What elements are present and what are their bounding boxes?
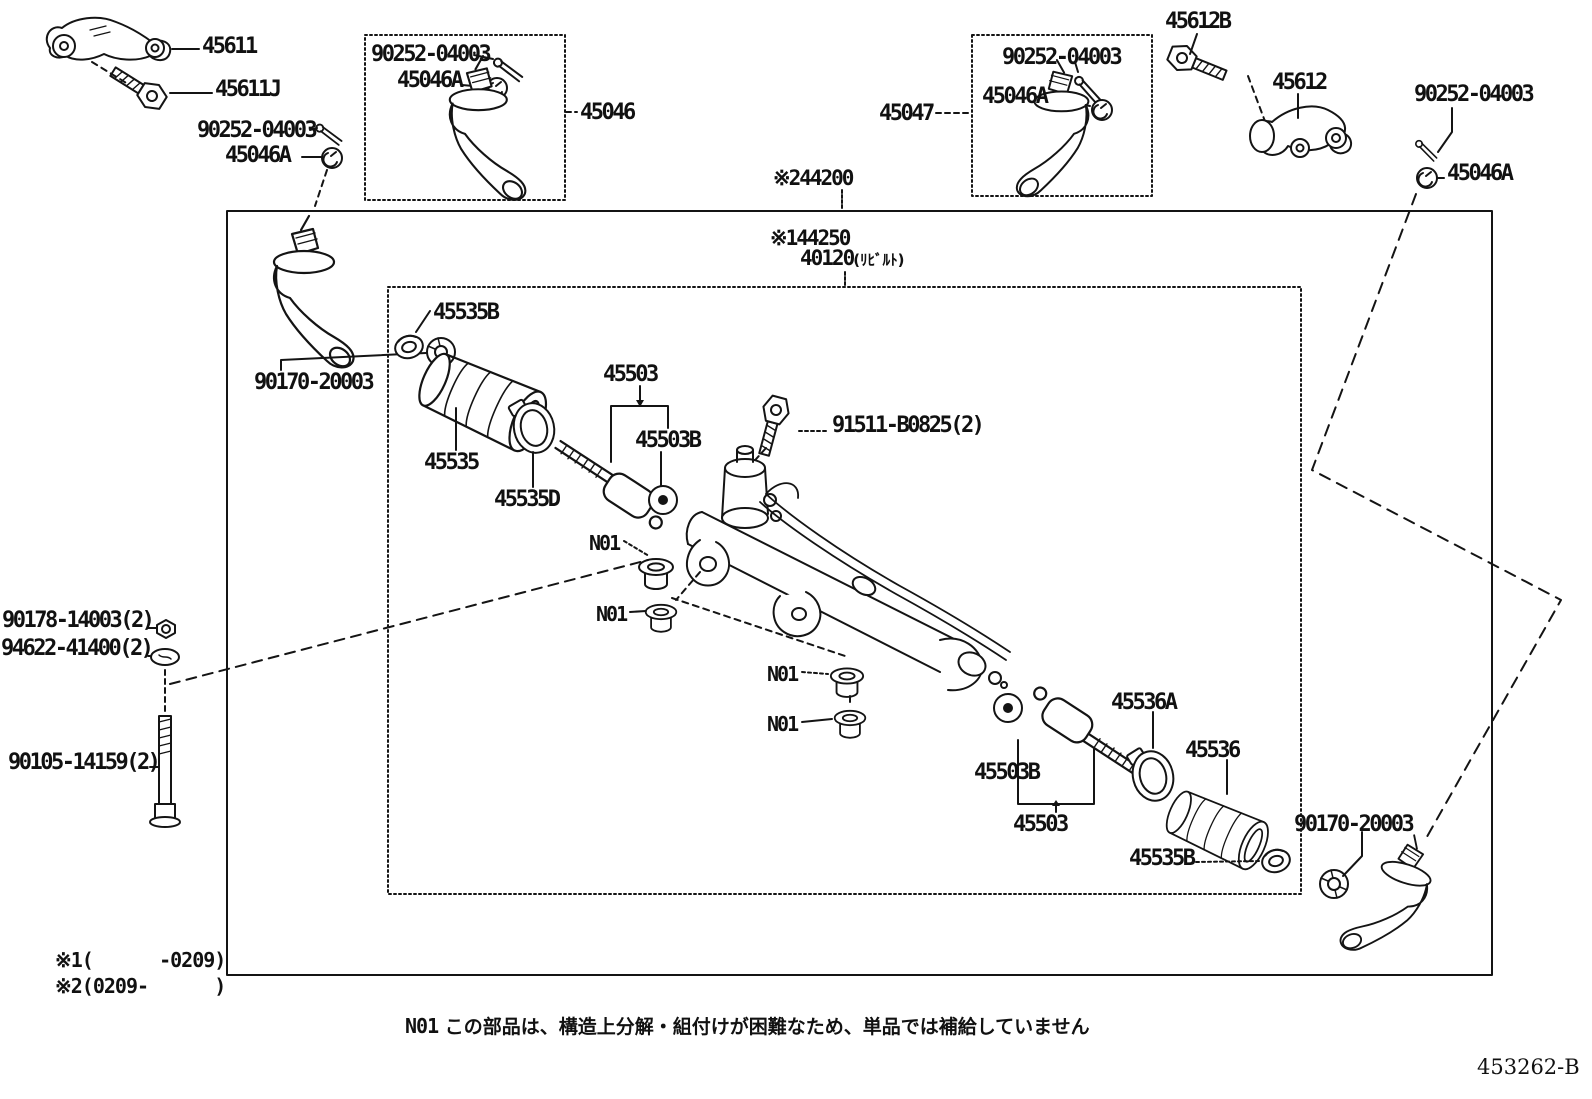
part-label-45535: 45535 (424, 452, 478, 474)
document-code: 453262-B (1477, 1057, 1580, 1078)
part-label-94622: 94622-41400(2) (1, 638, 151, 660)
clip-icon-tr (1417, 168, 1437, 188)
part-label-45535b-tl: 45535B (433, 302, 497, 324)
part-label-n01-1: N01 (589, 533, 619, 553)
assembly-label-40120-number: 40120 (800, 246, 853, 270)
part-label-45611j: 45611J (215, 79, 279, 101)
part-label-45536a: 45536A (1111, 692, 1175, 714)
part-label-45535b-bot: 45535B (1129, 848, 1193, 870)
gearbox-bolt-drawing (752, 394, 792, 458)
footnote-2: ※2(0209- ) (55, 976, 225, 996)
part-label-45612: 45612 (1272, 72, 1326, 94)
part-label-45611: 45611 (202, 36, 256, 58)
clip-icon-tl (322, 148, 342, 168)
inner-assembly-box (388, 287, 1301, 894)
claw-washer-top (649, 486, 677, 514)
n01-footnote-prefix: N01 (405, 1014, 438, 1038)
part-label-45535d: 45535D (494, 489, 558, 511)
part-label-90105: 90105-14159(2) (8, 752, 158, 774)
pitman-arm-drawing (47, 18, 170, 60)
grommet-2 (646, 605, 677, 632)
assembly-label-40120: 40120(ﾘﾋﾞﾙﾄ) (800, 248, 904, 269)
grommet-3 (831, 668, 863, 697)
washer-icon-94622 (151, 649, 179, 665)
clip-icon-box2 (1092, 100, 1112, 120)
claw-washer-bottom (994, 694, 1022, 722)
part-label-90252-tl: 90252-04003 (197, 120, 315, 142)
assembly-dash-right (1312, 194, 1561, 842)
rack-and-pinion-drawing (687, 446, 1010, 690)
part-label-90252-tr: 90252-04003 (1414, 84, 1532, 106)
pitman-arm-bolt-drawing (106, 61, 170, 114)
part-label-45046: 45046 (580, 102, 634, 124)
idler-arm-drawing (1250, 106, 1351, 157)
part-label-45536: 45536 (1185, 740, 1239, 762)
part-label-90170-br: 90170-20003 (1294, 814, 1412, 836)
part-label-45046a-tl: 45046A (225, 145, 289, 167)
nut-icon-90178 (157, 620, 175, 638)
n01-footnote-text: この部品は、構造上分解・組付けが困難なため、単品では補給していません (438, 1016, 1089, 1038)
part-label-90252-box2: 90252-04003 (1002, 47, 1120, 69)
assembly-label-244200: ※244200 (773, 168, 852, 189)
part-label-45503b-bot: 45503B (974, 762, 1038, 784)
boot-ring-left (393, 333, 426, 361)
grommet-1 (639, 559, 673, 589)
part-label-45046a-box1: 45046A (397, 70, 461, 92)
part-label-45503-bot: 45503 (1013, 814, 1067, 836)
part-label-90178: 90178-14003(2) (2, 610, 152, 632)
part-label-90252-box1: 90252-04003 (371, 44, 489, 66)
part-label-45047: 45047 (879, 103, 933, 125)
part-label-45503-top: 45503 (603, 364, 657, 386)
cotter-pin-icon-tl (313, 124, 344, 146)
part-label-45503b-top: 45503B (635, 430, 699, 452)
parts-diagram-page: 45611 45611J 90252-04003 45046A 90252-04… (0, 0, 1592, 1099)
part-label-n01-3: N01 (767, 664, 797, 684)
part-label-91511: 91511-B0825(2) (832, 415, 982, 437)
assembly-dash-left (170, 560, 648, 684)
part-label-45612b: 45612B (1165, 11, 1229, 33)
inner-tie-rod-drawing-top (542, 440, 676, 530)
assembly-label-40120-suffix: (ﾘﾋﾞﾙﾄ) (853, 251, 904, 269)
boot-clamp-right (1125, 741, 1178, 805)
boot-ring-right (1260, 847, 1293, 875)
tie-rod-end-drawing-left (274, 216, 354, 370)
idler-arm-bolt-drawing (1165, 41, 1229, 87)
cotter-pin-icon-tr (1412, 140, 1440, 162)
grommet-4 (835, 711, 866, 738)
part-label-90170-tl: 90170-20003 (254, 372, 372, 394)
part-label-n01-2: N01 (596, 604, 626, 624)
part-label-n01-4: N01 (767, 714, 797, 734)
tie-rod-end-drawing-bottom-right (1338, 824, 1443, 969)
n01-footnote: N01 この部品は、構造上分解・組付けが困難なため、単品では補給していません (405, 1016, 1090, 1037)
part-label-45046a-box2: 45046A (982, 86, 1046, 108)
footnote-1: ※1( -0209) (55, 950, 225, 970)
part-label-45046a-tr: 45046A (1447, 163, 1511, 185)
tie-rod-end-drawing-box2 (1017, 60, 1089, 199)
